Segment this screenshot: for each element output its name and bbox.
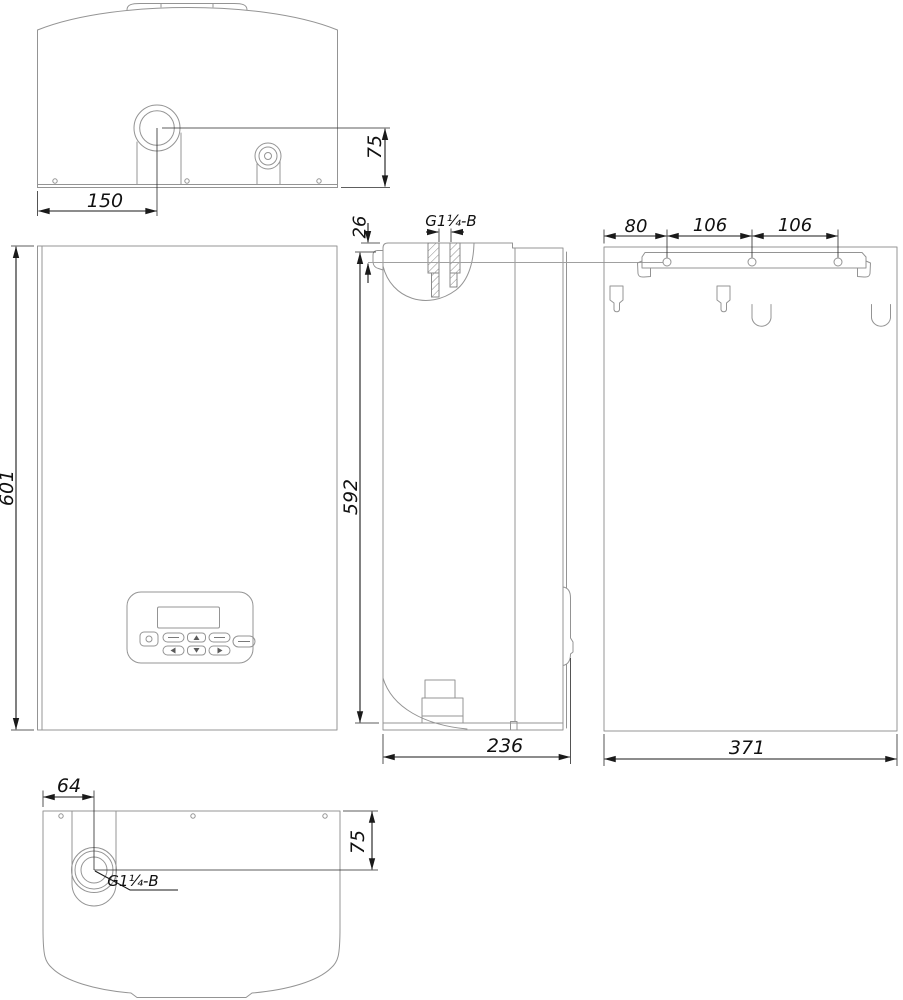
front-view-outline bbox=[38, 246, 338, 730]
keyhole-slot-2 bbox=[717, 286, 730, 312]
dim-side-mount-height: 592 bbox=[340, 479, 362, 515]
dimension-labels: 150 75 601 26 592 G1¼-B 236 80 106 106 3… bbox=[0, 135, 812, 890]
u-slot-2 bbox=[872, 305, 891, 327]
dim-bottom-pipe-y: 75 bbox=[347, 830, 369, 854]
u-slot-1 bbox=[752, 305, 771, 327]
arrow-down-icon bbox=[194, 648, 200, 653]
technical-drawing-canvas: 150 75 601 26 592 G1¼-B 236 80 106 106 3… bbox=[0, 0, 903, 1000]
dim-back-spacing-1: 80 bbox=[625, 216, 648, 237]
wall-hook bbox=[373, 251, 383, 271]
dim-back-width: 371 bbox=[729, 737, 765, 759]
dim-top-pipe-y: 75 bbox=[364, 135, 386, 159]
dim-front-height: 601 bbox=[0, 470, 18, 506]
label-side-thread: G1¼-B bbox=[425, 212, 476, 230]
burner-component bbox=[383, 678, 467, 729]
display-screen bbox=[158, 607, 220, 628]
power-button bbox=[140, 632, 158, 646]
dim-top-pipe-x: 150 bbox=[87, 190, 123, 212]
control-panel bbox=[127, 592, 255, 663]
bottom-view-outline bbox=[43, 811, 340, 998]
side-view bbox=[373, 243, 573, 730]
top-view-outline bbox=[38, 8, 338, 188]
side-view-outline bbox=[383, 243, 563, 730]
label-bottom-thread: G1¼-B bbox=[107, 872, 158, 890]
keyhole-slot-1 bbox=[610, 286, 623, 312]
pipe-connection-section bbox=[428, 243, 460, 297]
front-view bbox=[38, 246, 338, 730]
technical-drawing-page: 150 75 601 26 592 G1¼-B 236 80 106 106 3… bbox=[0, 0, 903, 1000]
arrow-left-icon bbox=[171, 648, 176, 654]
bottom-view bbox=[43, 811, 340, 998]
power-icon bbox=[146, 636, 152, 642]
dim-bottom-pipe-x: 64 bbox=[57, 775, 81, 797]
flue-outlet bbox=[134, 105, 181, 185]
arrow-right-icon bbox=[218, 648, 223, 654]
dim-back-spacing-2: 106 bbox=[693, 215, 727, 236]
back-view bbox=[604, 247, 897, 731]
dim-side-depth: 236 bbox=[487, 735, 523, 757]
top-view bbox=[38, 4, 338, 188]
dim-back-spacing-3: 106 bbox=[778, 215, 812, 236]
back-view-outline bbox=[604, 247, 897, 731]
mounting-bracket bbox=[638, 253, 871, 278]
dim-side-top-inset: 26 bbox=[350, 216, 371, 239]
air-intake-outlet bbox=[255, 143, 281, 185]
arrow-up-icon bbox=[194, 635, 200, 640]
side-latch bbox=[563, 587, 573, 666]
